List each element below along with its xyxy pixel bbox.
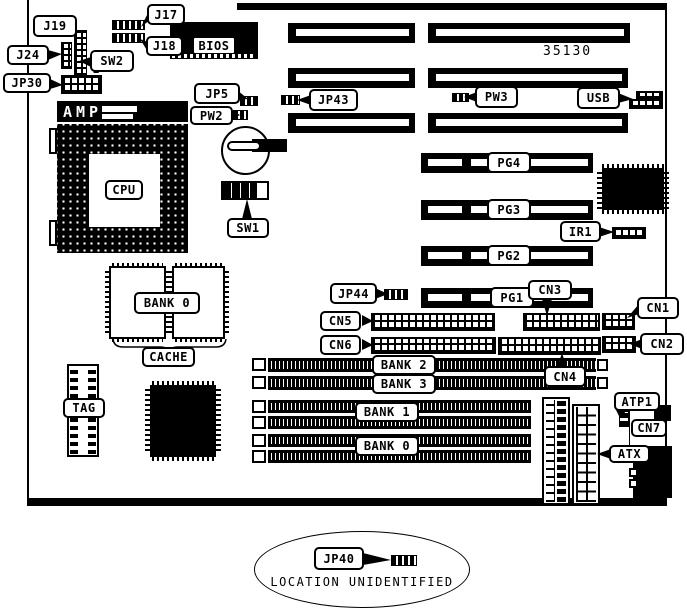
cn4-header bbox=[498, 337, 601, 355]
isa-slot-1-right bbox=[428, 23, 630, 43]
footer-note: LOCATION UNIDENTIFIED bbox=[262, 575, 462, 589]
isa-slot-line bbox=[436, 29, 624, 36]
board-edge-top bbox=[237, 3, 667, 10]
callout-jp43: JP43 bbox=[309, 89, 358, 111]
cn1-header bbox=[602, 313, 635, 330]
callout-cn3: CN3 bbox=[528, 280, 572, 300]
pci-label-pg2: PG2 bbox=[487, 245, 531, 266]
keyboard-connector-step bbox=[647, 446, 672, 462]
jp30-header bbox=[61, 75, 102, 94]
atx-power-pins bbox=[576, 407, 596, 502]
keyboard-connector-pin bbox=[629, 468, 638, 477]
amp-logo-mark2 bbox=[102, 114, 133, 119]
figure-part-number: 35130 bbox=[543, 44, 592, 59]
callout-jp5: JP5 bbox=[194, 83, 240, 104]
isa-slot-1-left bbox=[288, 23, 415, 43]
j24-connector bbox=[61, 42, 72, 69]
isa-slot-line bbox=[436, 119, 622, 126]
at-power-pins-right bbox=[557, 400, 566, 502]
jp40-jumper bbox=[391, 555, 417, 566]
isa-slot-line bbox=[296, 29, 409, 36]
sw1-switch-block bbox=[221, 181, 269, 200]
callout-usb: USB bbox=[577, 87, 620, 109]
battery-clip-pad bbox=[227, 141, 261, 151]
amp-logo-mark bbox=[102, 106, 137, 112]
isa-slot-2-left bbox=[288, 68, 415, 88]
pci-slot-segment bbox=[428, 294, 462, 301]
amp-logo-text: AMP bbox=[63, 103, 102, 121]
bios-label: BIOS bbox=[193, 37, 235, 54]
pci-slot-segment bbox=[428, 252, 462, 259]
chipset-pins-right bbox=[664, 169, 669, 209]
isa-slot-line bbox=[296, 119, 409, 126]
pci-slot-segment bbox=[428, 159, 462, 166]
simm-latch bbox=[252, 358, 266, 371]
callout-jp40: JP40 bbox=[314, 547, 364, 570]
callout-cn2: CN2 bbox=[640, 333, 684, 355]
cn5-header bbox=[371, 313, 495, 331]
atp1-connector bbox=[619, 411, 629, 427]
callout-cn7: CN7 bbox=[631, 419, 667, 437]
chipset-chip bbox=[602, 168, 664, 210]
pw3-connector bbox=[452, 93, 469, 102]
bank3-label: BANK 3 bbox=[372, 374, 436, 394]
callout-jp44: JP44 bbox=[330, 283, 377, 304]
callout-sw1: SW1 bbox=[227, 218, 269, 238]
socket-clip-top bbox=[49, 128, 57, 154]
simm-latch bbox=[597, 377, 608, 389]
motherboard-diagram: 2 AMP CPU 35130 bbox=[0, 0, 687, 611]
j18-connector bbox=[112, 33, 145, 43]
isa-slot-2-right bbox=[428, 68, 628, 88]
io-chip bbox=[150, 385, 216, 457]
usb-header-bottom bbox=[629, 99, 663, 109]
callout-pw2: PW2 bbox=[190, 106, 233, 125]
callout-j18: J18 bbox=[146, 36, 183, 56]
cache-bank-label: BANK 0 bbox=[134, 292, 200, 314]
io-chip-pins-right bbox=[216, 387, 221, 451]
pci-slot-segment bbox=[428, 206, 462, 213]
j17-connector bbox=[112, 20, 145, 30]
keyboard-connector-pin bbox=[629, 479, 638, 488]
bios-chip-pins bbox=[172, 54, 256, 58]
callout-cn5: CN5 bbox=[320, 311, 361, 331]
keyboard-connector-body bbox=[633, 461, 672, 498]
callout-cn6: CN6 bbox=[320, 335, 361, 355]
cache-label: CACHE bbox=[142, 347, 195, 367]
bank1-label: BANK 1 bbox=[355, 402, 419, 422]
callout-j17: J17 bbox=[147, 4, 185, 25]
cn6-header bbox=[371, 337, 496, 354]
simm-latch bbox=[252, 450, 266, 463]
pointer-j24 bbox=[48, 50, 62, 60]
socket-clip-bottom bbox=[49, 220, 57, 246]
isa-slot-3-right bbox=[428, 113, 628, 133]
simm-latch bbox=[252, 400, 266, 413]
isa-slot-line bbox=[436, 74, 622, 81]
pci-label-pg4: PG4 bbox=[487, 152, 531, 173]
pci-label-pg3: PG3 bbox=[487, 199, 531, 220]
callout-cn4: CN4 bbox=[544, 366, 586, 387]
tag-label: TAG bbox=[63, 398, 105, 418]
ir1-connector bbox=[612, 227, 646, 239]
callout-ir1: IR1 bbox=[560, 221, 601, 242]
pointer-sw1 bbox=[242, 199, 252, 219]
pw2-connector bbox=[233, 110, 248, 120]
simm-latch bbox=[597, 359, 608, 371]
simm-latch bbox=[252, 376, 266, 389]
callout-atp1: ATP1 bbox=[614, 392, 660, 411]
callout-j19: J19 bbox=[33, 15, 77, 37]
simm-latch bbox=[252, 434, 266, 447]
board-edge-bottom bbox=[27, 498, 667, 506]
callout-j24: J24 bbox=[7, 45, 49, 65]
jp44-jumper bbox=[384, 289, 408, 300]
at-power-pins-left bbox=[546, 400, 555, 502]
bank2-label: BANK 2 bbox=[372, 355, 436, 375]
callout-cn1: CN1 bbox=[637, 297, 679, 319]
unidentified-location-ellipse bbox=[254, 531, 470, 608]
cn2-header bbox=[602, 336, 636, 353]
isa-slot-line bbox=[296, 74, 409, 81]
cn7-callout-line bbox=[629, 410, 630, 446]
jp43-jumper bbox=[281, 95, 300, 105]
jp5-jumper bbox=[240, 96, 258, 106]
callout-atx: ATX bbox=[609, 445, 650, 463]
callout-sw2: SW2 bbox=[90, 50, 134, 72]
bank0-label: BANK 0 bbox=[355, 436, 419, 456]
isa-slot-3-left bbox=[288, 113, 415, 133]
callout-pw3: PW3 bbox=[475, 86, 518, 108]
cpu-label: CPU bbox=[105, 180, 143, 200]
cn3-header bbox=[523, 313, 600, 331]
callout-jp30: JP30 bbox=[3, 73, 51, 93]
simm-latch bbox=[252, 416, 266, 429]
